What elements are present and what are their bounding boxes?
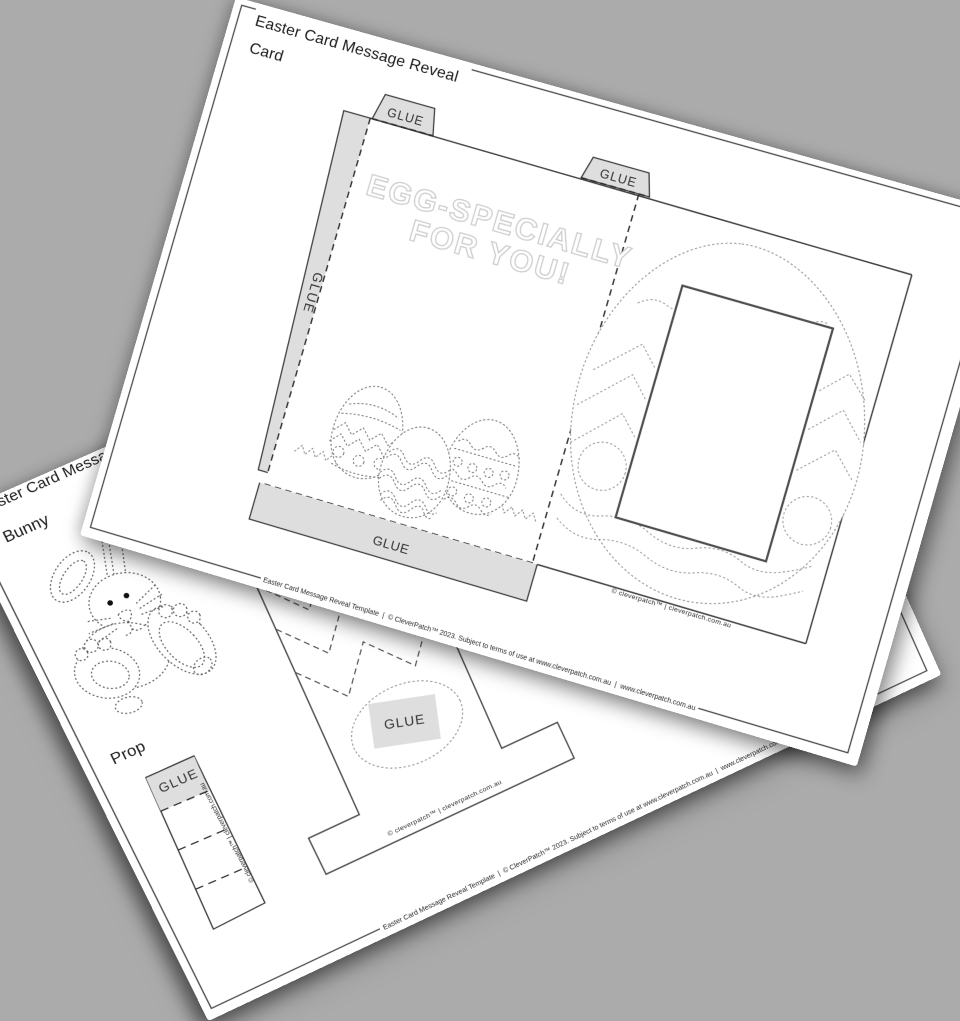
svg-text:Card: Card [247,40,285,66]
svg-text:Bunny: Bunny [0,510,52,546]
svg-text:Prop: Prop [107,737,148,768]
